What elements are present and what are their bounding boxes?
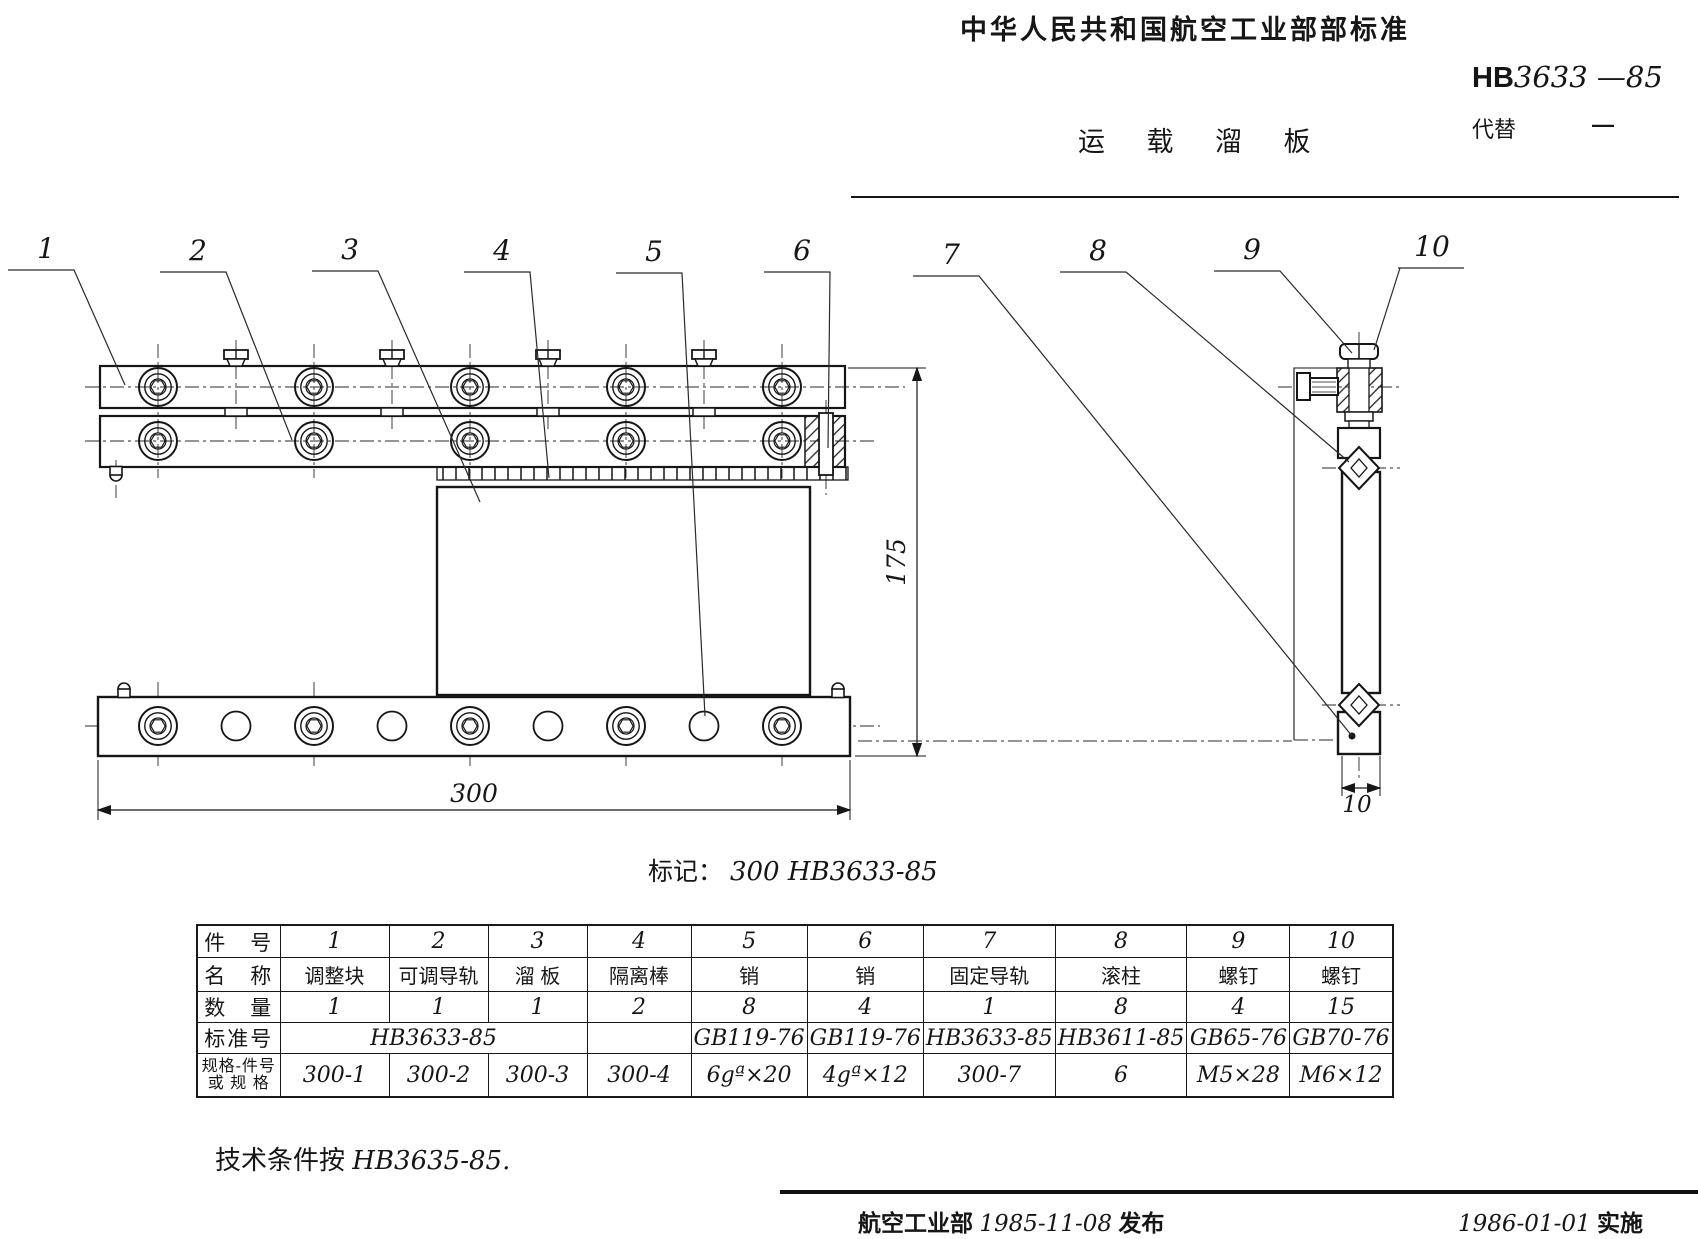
marking-label: 标记：	[648, 858, 723, 886]
fixed-rail-bar	[98, 697, 850, 756]
row-header-qty: 数 量	[197, 992, 280, 1023]
row-header-names: 名 称	[197, 958, 280, 992]
row-spec: 规格-件号或 规 格 300-1 300-2 300-3 300-4 6gª×2…	[197, 1054, 1393, 1098]
cell-name-9: 螺钉	[1187, 958, 1290, 992]
cell-part-no-6: 6	[807, 925, 923, 958]
tech-note-prefix: 技术条件按	[215, 1145, 345, 1175]
cell-spec-2: 300-2	[389, 1054, 488, 1098]
cell-part-no-5: 5	[691, 925, 807, 958]
spacer-teeth-strip	[437, 467, 848, 480]
cell-spec-6: 4gª×12	[807, 1054, 923, 1098]
cell-part-no-8: 8	[1055, 925, 1187, 958]
cell-name-8: 滚柱	[1055, 958, 1187, 992]
footer-impl-date: 1986-01-01	[1458, 1211, 1591, 1237]
header-divider	[851, 196, 1679, 198]
cell-qty-7: 1	[923, 992, 1055, 1023]
cell-spec-5: 6gª×20	[691, 1054, 807, 1098]
part-label-9: 9	[1243, 233, 1261, 266]
parts-table: 件 号 1 2 3 4 5 6 7 8 9 10 名 称 调整块 可调导轨 溜 …	[196, 924, 1394, 1098]
standard-document-page: 1 2 3 4 5 6 7 8 9 10 300 175 10 中华人民共和国航…	[0, 0, 1698, 1239]
cell-qty-6: 4	[807, 992, 923, 1023]
cell-name-6: 销	[807, 958, 923, 992]
marking-value: 300 HB3633-85	[730, 857, 938, 887]
cell-spec-4: 300-4	[587, 1054, 691, 1098]
side-rail-bar	[1342, 472, 1380, 693]
cell-std-empty	[587, 1023, 691, 1054]
cell-spec-10: M6×12	[1290, 1054, 1393, 1098]
part-label-4: 4	[492, 234, 511, 267]
cell-spec-8: 6	[1055, 1054, 1187, 1098]
tech-note-value: HB3635-85.	[352, 1146, 510, 1176]
cell-qty-1: 1	[280, 992, 389, 1023]
slide-plate	[437, 487, 810, 695]
replaces-label: 代替	[1472, 117, 1516, 142]
footer-effective: 1986-01-01 实施	[1458, 1204, 1643, 1238]
cell-std-8: HB3611-85	[1055, 1023, 1187, 1054]
cell-qty-2: 1	[389, 992, 488, 1023]
vertical-pin	[819, 413, 833, 475]
cell-spec-3: 300-3	[488, 1054, 587, 1098]
row-header-part-no: 件 号	[197, 925, 280, 958]
cell-name-2: 可调导轨	[389, 958, 488, 992]
replaces-value: —	[1592, 112, 1614, 138]
cell-std-10: GB70-76	[1290, 1023, 1393, 1054]
front-view	[98, 350, 850, 756]
footer-issuer: 航空工业部	[858, 1210, 973, 1236]
part-label-3: 3	[341, 233, 359, 266]
row-qty: 数 量 1 1 1 2 8 4 1 8 4 15	[197, 992, 1393, 1023]
standard-org-title: 中华人民共和国航空工业部部标准	[950, 8, 1420, 47]
part-label-6: 6	[793, 234, 811, 267]
cell-name-1: 调整块	[280, 958, 389, 992]
document-title: 运 载 溜 板	[1078, 120, 1317, 159]
row-standard: 标准号 HB3633-85 GB119-76 GB119-76 HB3633-8…	[197, 1023, 1393, 1054]
standard-code-number: 3633	[1514, 60, 1588, 94]
technical-conditions-note: 技术条件按 HB3635-85.	[215, 1140, 510, 1177]
cell-spec-7: 300-7	[923, 1054, 1055, 1098]
cell-qty-5: 8	[691, 992, 807, 1023]
cell-std-5: GB119-76	[691, 1023, 807, 1054]
footer-issue-word: 发布	[1118, 1210, 1164, 1236]
row-names: 名 称 调整块 可调导轨 溜 板 隔离棒 销 销 固定导轨 滚柱 螺钉 螺钉	[197, 958, 1393, 992]
cell-std-6: GB119-76	[807, 1023, 923, 1054]
part-label-10: 10	[1414, 230, 1450, 263]
footer-issue-date: 1985-11-08	[979, 1211, 1112, 1237]
cell-part-no-7: 7	[923, 925, 1055, 958]
part-label-8: 8	[1089, 234, 1107, 267]
row-part-no: 件 号 1 2 3 4 5 6 7 8 9 10	[197, 925, 1393, 958]
cell-part-no-4: 4	[587, 925, 691, 958]
footer-impl-word: 实施	[1597, 1210, 1643, 1236]
cell-qty-3: 1	[488, 992, 587, 1023]
cell-part-no-2: 2	[389, 925, 488, 958]
cell-name-10: 螺钉	[1290, 958, 1393, 992]
side-top-screw	[1340, 344, 1378, 368]
part-label-7: 7	[942, 238, 960, 271]
part-labels: 1 2 3 4 5 6 7 8 9 10	[37, 230, 1450, 271]
dim-height-175: 175	[882, 538, 911, 586]
cell-std-9: GB65-76	[1187, 1023, 1290, 1054]
footer-issued: 航空工业部 1985-11-08 发布	[858, 1204, 1164, 1238]
side-outline	[1294, 368, 1338, 740]
row-header-spec: 规格-件号或 规 格	[197, 1054, 280, 1098]
cell-name-3: 溜 板	[488, 958, 587, 992]
part-label-5: 5	[645, 235, 663, 268]
replaces-row: 代替 —	[1472, 112, 1692, 144]
cell-std-7: HB3633-85	[923, 1023, 1055, 1054]
cell-part-no-1: 1	[280, 925, 389, 958]
standard-code-year: —85	[1588, 60, 1663, 94]
marking-note: 标记： 300 HB3633-85	[648, 852, 938, 888]
standard-code-prefix: HB	[1472, 62, 1514, 94]
row-header-standard: 标准号	[197, 1023, 280, 1054]
cell-qty-10: 15	[1290, 992, 1393, 1023]
cell-part-no-3: 3	[488, 925, 587, 958]
side-horizontal-screw	[1297, 373, 1338, 400]
cell-qty-9: 4	[1187, 992, 1290, 1023]
dim-side-width-10: 10	[1342, 792, 1371, 818]
cell-name-7: 固定导轨	[923, 958, 1055, 992]
standard-code: HB3633 —85	[1472, 60, 1663, 95]
cell-qty-4: 2	[587, 992, 691, 1023]
cell-part-no-9: 9	[1187, 925, 1290, 958]
cell-spec-1: 300-1	[280, 1054, 389, 1098]
cell-spec-9: M5×28	[1187, 1054, 1290, 1098]
cell-name-5: 销	[691, 958, 807, 992]
cell-std-merged: HB3633-85	[280, 1023, 587, 1054]
side-view	[1294, 344, 1382, 754]
part-label-1: 1	[37, 232, 55, 265]
cell-name-4: 隔离棒	[587, 958, 691, 992]
cell-qty-8: 8	[1055, 992, 1187, 1023]
part-label-2: 2	[188, 234, 207, 267]
footer-divider	[780, 1190, 1698, 1194]
cell-part-no-10: 10	[1290, 925, 1393, 958]
dim-length-300: 300	[450, 779, 498, 808]
